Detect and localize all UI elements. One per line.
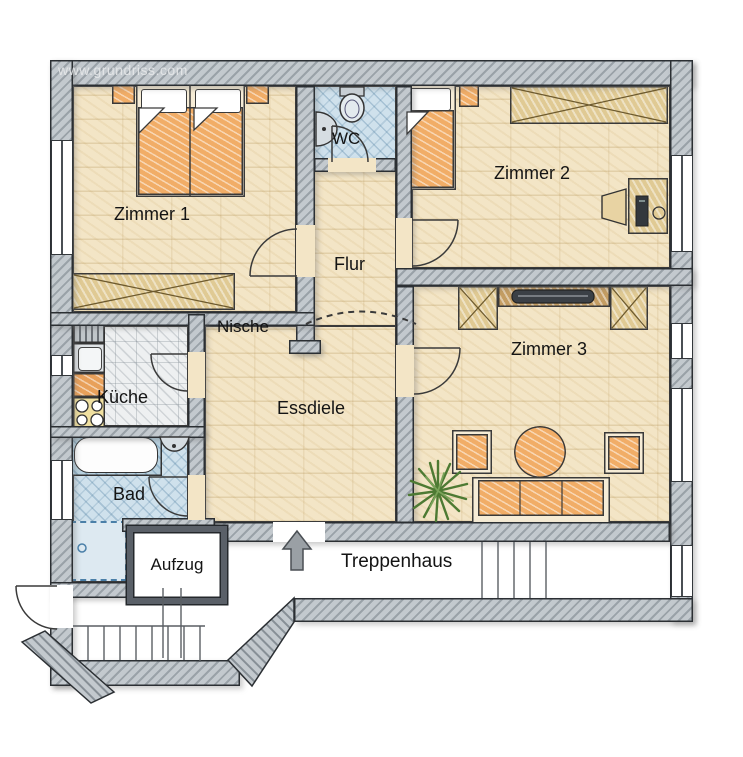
label-kueche: Küche	[97, 387, 148, 408]
nightstand	[459, 85, 479, 107]
sofa-cushions	[478, 480, 604, 516]
room-flur	[314, 160, 396, 326]
wall	[396, 286, 414, 523]
label-essdiele: Essdiele	[277, 398, 345, 419]
wall	[294, 598, 693, 622]
elevator: Aufzug	[127, 526, 227, 604]
shower	[70, 521, 127, 581]
kitchen-sink-basin	[78, 347, 102, 371]
door-opening	[188, 475, 205, 520]
label-flur: Flur	[334, 254, 365, 275]
window	[671, 388, 693, 482]
armchair-cushion	[608, 436, 640, 470]
desk	[628, 178, 668, 234]
wall	[396, 268, 693, 286]
bed-blanket	[406, 110, 454, 188]
elevator-label: Aufzug	[151, 555, 204, 575]
room-essdiele	[205, 326, 396, 522]
room-wc	[314, 86, 396, 162]
cabinet	[610, 286, 648, 330]
pillow	[195, 89, 241, 113]
window	[671, 155, 693, 252]
nightstand	[112, 85, 135, 104]
window	[671, 323, 693, 359]
bathtub	[74, 437, 158, 473]
pillow	[141, 89, 187, 113]
wardrobe	[510, 86, 668, 124]
watermark: www.grundriss.com	[58, 62, 188, 78]
round-table	[514, 426, 566, 478]
armchair-cushion	[456, 434, 488, 470]
door-opening	[328, 158, 376, 172]
stairs-right	[482, 542, 546, 598]
window	[51, 460, 73, 520]
entrance-door-opening	[273, 522, 325, 542]
cabinet	[458, 286, 498, 330]
door-opening	[188, 352, 205, 398]
label-zimmer1: Zimmer 1	[114, 204, 190, 225]
label-nische: Nische	[217, 317, 269, 337]
window	[51, 355, 73, 376]
wall	[50, 312, 315, 326]
bed-blanket	[138, 107, 243, 195]
window	[671, 545, 693, 597]
label-treppenhaus: Treppenhaus	[341, 551, 452, 573]
door-opening	[396, 345, 414, 397]
window	[51, 140, 73, 255]
wall	[50, 660, 240, 686]
wall	[289, 340, 321, 354]
door-opening	[296, 225, 315, 277]
label-wc: WC	[332, 129, 360, 149]
door-opening	[396, 218, 412, 268]
building-door-opening	[50, 585, 73, 628]
floor-plan: Aufzug	[0, 0, 743, 757]
nightstand	[246, 85, 269, 104]
label-zimmer2: Zimmer 2	[494, 163, 570, 184]
wall	[50, 426, 205, 438]
wardrobe	[72, 273, 235, 310]
label-zimmer3: Zimmer 3	[511, 339, 587, 360]
label-bad: Bad	[113, 484, 145, 505]
tv-board	[498, 286, 610, 307]
pillow	[409, 88, 451, 111]
